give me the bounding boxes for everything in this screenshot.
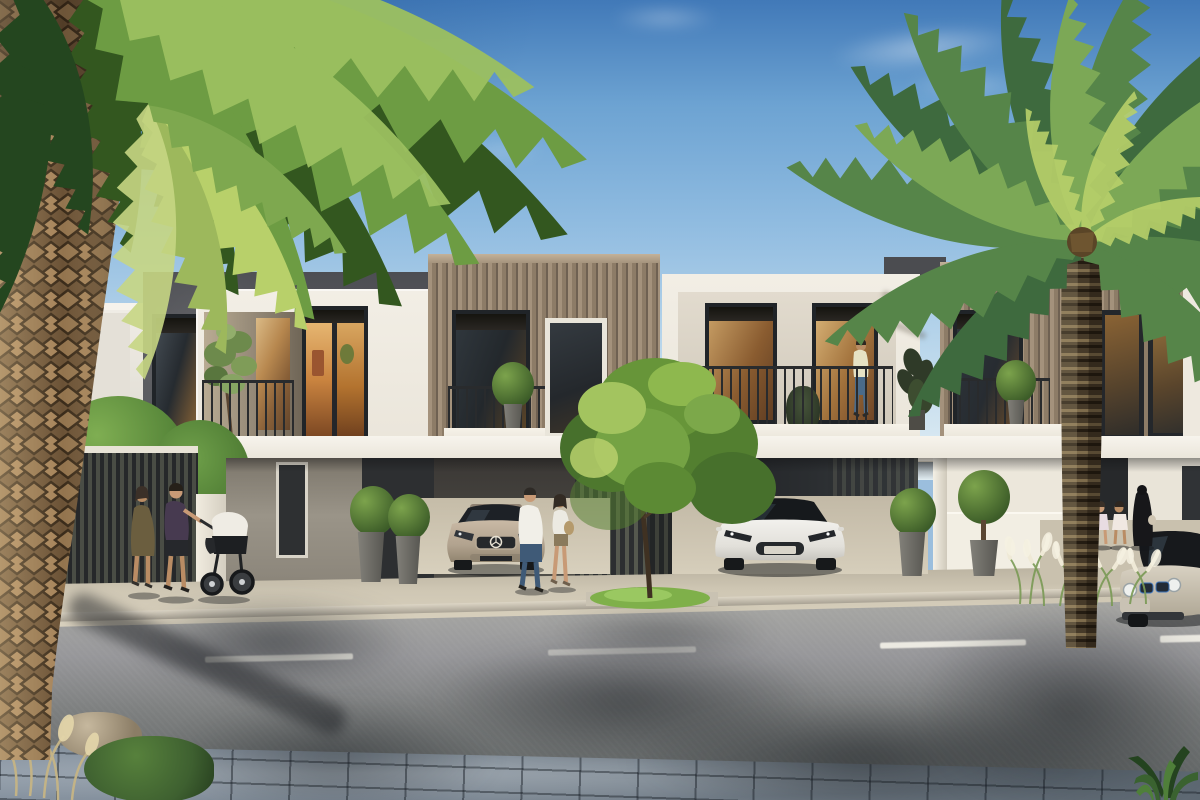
right-palm-tree	[760, 0, 1200, 668]
foreground-shrub	[1124, 722, 1200, 800]
street-scene	[0, 0, 1200, 800]
left-palm-tree	[0, 0, 720, 800]
